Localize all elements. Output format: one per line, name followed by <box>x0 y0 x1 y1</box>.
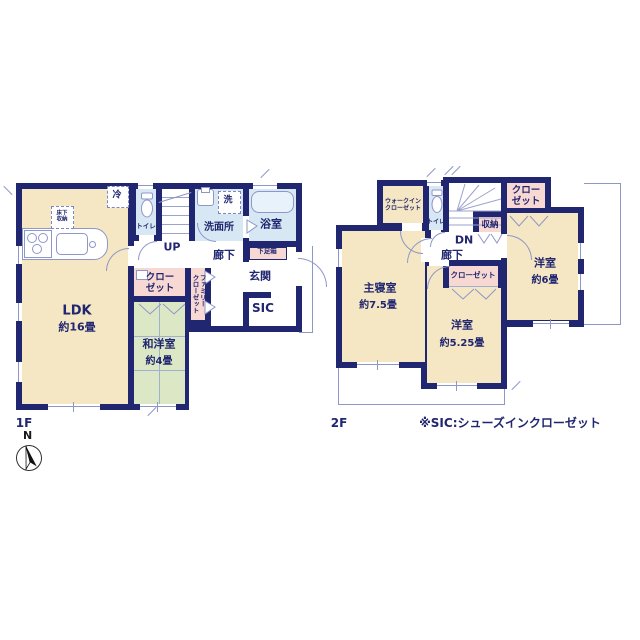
fridge-label: 冷 <box>112 191 121 202</box>
folding-door-west-a-icon <box>451 288 497 300</box>
svg-text:N: N <box>23 429 32 442</box>
window <box>16 303 22 321</box>
stairs-dn-label: DN <box>455 235 473 248</box>
west-room-6-label: 洋室 <box>534 258 556 271</box>
folding-door-storage-icon <box>477 233 503 244</box>
dim-tick <box>511 381 520 390</box>
washitsu-label: 和洋室 <box>143 339 176 352</box>
entrance-label: 玄関 <box>249 271 271 284</box>
underfloor-label: 床下収納 <box>56 211 67 224</box>
family-closet-label: ファミリークローゼット <box>191 275 206 314</box>
dim-tick <box>3 186 12 195</box>
window-mullion <box>73 402 74 412</box>
walkin-closet-label: ウォークインクローゼット <box>385 198 421 212</box>
shoe-box-label: 下足箱 <box>257 248 277 256</box>
west-room-6-area-label: 約6畳 <box>532 275 559 287</box>
window <box>437 383 477 389</box>
wall-closet-mid-right <box>498 262 507 288</box>
window <box>253 183 277 189</box>
stove-burner-icon <box>27 233 37 243</box>
window <box>140 404 176 410</box>
west-room-525-area-label: 約5.25畳 <box>440 338 485 350</box>
door-gap-toilet-1f <box>139 235 154 241</box>
door-gap-washroom <box>197 241 215 247</box>
floor2-label: 2F <box>331 416 348 430</box>
storage-label: 収納 <box>481 220 498 230</box>
window <box>578 243 584 259</box>
sink-drain-icon <box>89 241 96 248</box>
closet-2f-top-label: クローゼット <box>512 185 541 207</box>
washroom-label: 洗面所 <box>204 222 234 234</box>
washbasin-tap-icon <box>201 187 210 193</box>
washer-label: 洗 <box>223 196 232 207</box>
toilet-1f-label: トイレ <box>136 223 156 231</box>
sic-label: SIC <box>252 301 274 315</box>
window <box>427 180 441 186</box>
window <box>138 183 153 189</box>
toilet-icon <box>430 189 444 214</box>
wall-sic-stub <box>249 292 271 298</box>
window-mullion <box>550 319 551 329</box>
closet-1f-label: クローゼット <box>146 272 175 294</box>
west-room-525-label: 洋室 <box>451 320 473 333</box>
window <box>357 362 399 368</box>
stove-burner-icon <box>32 244 42 254</box>
door-arc-front-door <box>298 258 327 287</box>
window <box>48 404 100 410</box>
door-gap-wic <box>402 223 422 231</box>
bathroom-label: 浴室 <box>260 219 282 232</box>
folding-door-west-b-icon <box>509 215 549 227</box>
hallway-2f-label: 廊下 <box>441 250 463 263</box>
stove-burner-icon <box>38 233 48 243</box>
ldk-label: LDK <box>62 303 91 318</box>
window-mullion <box>456 381 457 391</box>
closet-2f-mid-line <box>449 286 498 287</box>
folding-door-washitsu-icon <box>138 303 186 315</box>
stairs-up-label: UP <box>164 242 181 255</box>
closet-2f-mid-label: クローゼット <box>451 272 496 281</box>
tatami-line <box>134 370 185 371</box>
sic-note: ※SIC:シューズインクローゼット <box>419 416 601 430</box>
compass-icon: N <box>12 428 48 476</box>
bathtub-icon <box>251 191 294 213</box>
dim-tick <box>426 168 435 177</box>
master-bedroom-area-label: 約7.5畳 <box>359 300 397 312</box>
floorplan-canvas: LDK 約16畳 和洋室 約4畳 クローゼット ファミリークローゼット トイレ … <box>0 0 640 640</box>
window <box>336 249 342 267</box>
toilet-2f-label: トイレ <box>427 218 445 225</box>
dim-tick <box>260 169 269 178</box>
washitsu-area-label: 約4畳 <box>146 356 173 368</box>
window-mullion <box>157 402 158 412</box>
hallway-1f-label: 廊下 <box>213 250 235 263</box>
roof-outline <box>584 183 621 325</box>
ldk-room <box>22 189 128 404</box>
toilet-icon <box>139 192 155 219</box>
window <box>578 274 584 290</box>
folding-door-bathroom-icon <box>246 219 258 234</box>
master-bedroom-label: 主寝室 <box>364 283 397 296</box>
tatami-line <box>159 302 160 404</box>
window-mullion <box>377 360 378 370</box>
ldk-area-label: 約16畳 <box>58 322 95 335</box>
kitchen-sink-icon <box>56 233 88 255</box>
window <box>16 362 22 382</box>
window <box>533 321 569 327</box>
